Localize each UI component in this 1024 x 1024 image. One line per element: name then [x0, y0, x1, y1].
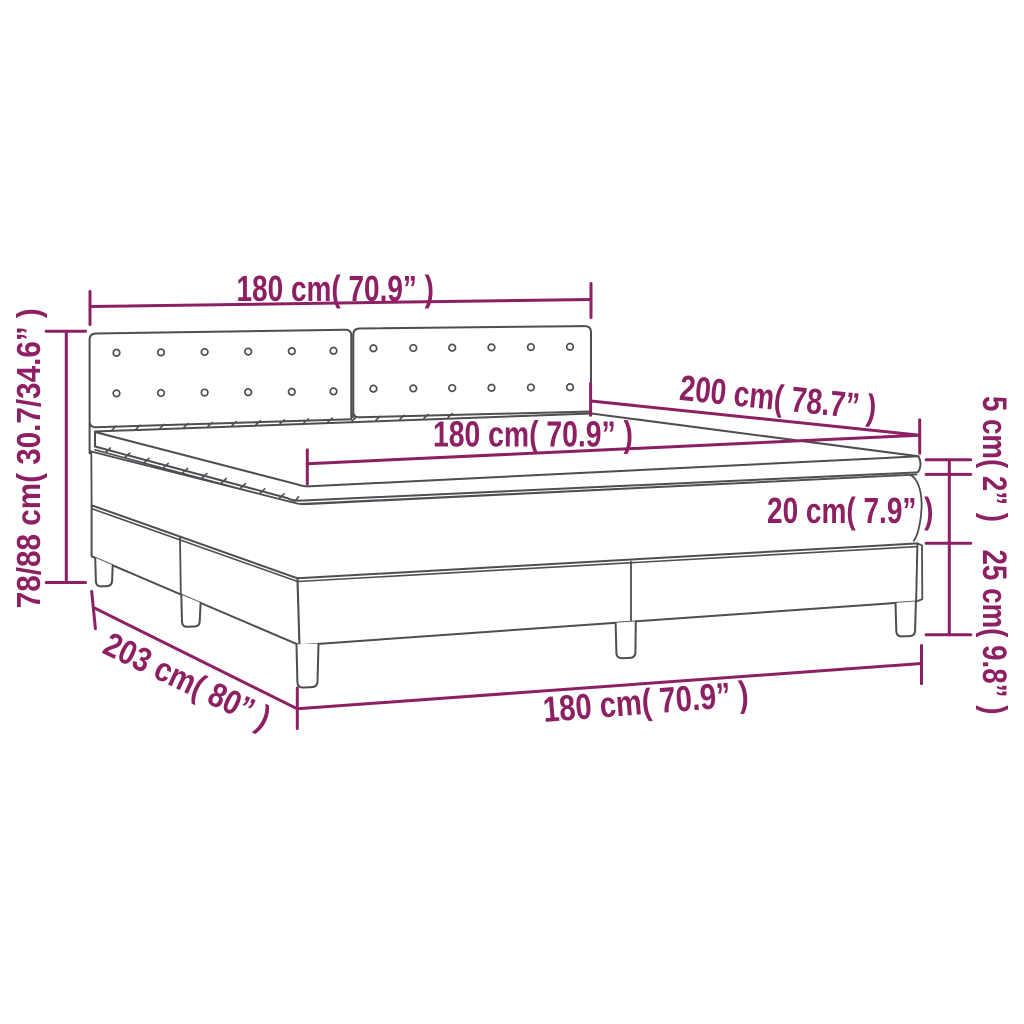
svg-text:200 cm( 78.7” ): 200 cm( 78.7” ) — [678, 367, 879, 428]
svg-text:78/88 cm( 30.7/34.6” ): 78/88 cm( 30.7/34.6” ) — [10, 308, 47, 608]
svg-text:180 cm( 70.9” ): 180 cm( 70.9” ) — [237, 268, 435, 309]
svg-text:203 cm( 80” ): 203 cm( 80” ) — [98, 625, 277, 737]
svg-text:25 cm( 9.8” ): 25 cm( 9.8” ) — [975, 550, 1013, 715]
svg-text:20 cm( 7.9” ): 20 cm( 7.9” ) — [767, 490, 934, 531]
svg-text:180 cm( 70.9” ): 180 cm( 70.9” ) — [541, 673, 750, 730]
svg-text:5 cm( 2” ): 5 cm( 2” ) — [975, 396, 1013, 522]
svg-text:180 cm( 70.9” ): 180 cm( 70.9” ) — [433, 414, 633, 455]
